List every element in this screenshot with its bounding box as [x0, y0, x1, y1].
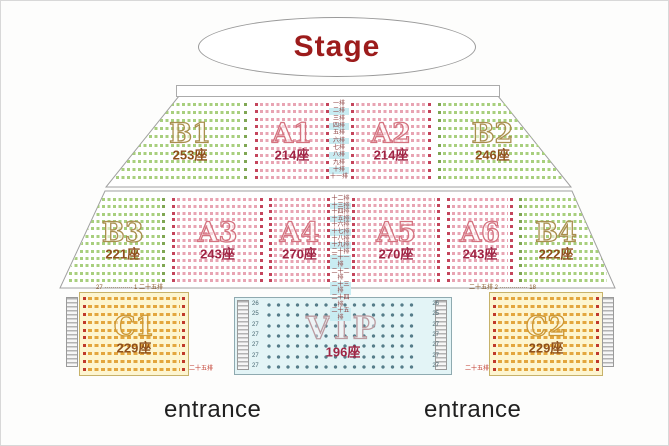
seat-row — [274, 273, 325, 276]
seat-row — [88, 336, 180, 339]
seat-row — [177, 259, 258, 262]
seat-row — [274, 248, 325, 251]
seat-row — [69, 257, 160, 260]
seat-row — [260, 176, 324, 179]
seat-row — [274, 210, 325, 213]
seat-row — [177, 239, 258, 242]
seat-row — [498, 360, 594, 363]
seat-row — [177, 225, 258, 228]
seat-row — [356, 139, 426, 142]
seat-row — [274, 217, 325, 220]
seat-row — [357, 254, 435, 257]
seat-row — [260, 139, 324, 142]
seat-row — [260, 147, 324, 150]
seat-row — [443, 160, 563, 163]
seat-row — [452, 205, 508, 208]
section-C2[interactable]: C2229座 — [489, 292, 603, 376]
stage: Stage — [198, 17, 476, 77]
seat-row — [357, 248, 435, 251]
row-label: 二十二排 — [330, 269, 351, 282]
row-labels-upper: 一排二排三排四排五排六排七排八排九排十排十一排 — [329, 101, 349, 181]
entrance-label-left: entrance — [164, 396, 261, 424]
seat-row — [524, 250, 607, 253]
vip-row-number: 26 — [252, 301, 262, 307]
seat-row — [357, 217, 435, 220]
seat-row — [116, 168, 242, 171]
seat-row — [274, 254, 325, 257]
seat-row — [274, 260, 325, 263]
stage-label: Stage — [294, 30, 381, 64]
seat-row — [356, 118, 426, 121]
vip-row-number: 27 — [429, 322, 439, 328]
seat-row — [116, 160, 242, 163]
seat-row — [267, 334, 419, 338]
seat-row — [116, 176, 242, 179]
seat-rows — [357, 198, 435, 282]
row-label: 五排 — [329, 130, 349, 137]
row-label: 九排 — [329, 160, 349, 167]
row-labels-middle: 十二排十三排十四排十五排十六排十七排十八排十九排二十排二十一排二十二排二十三排二… — [330, 196, 351, 284]
seat-row — [356, 132, 426, 135]
seat-row — [88, 297, 180, 300]
vip-row-number: 26 — [429, 301, 439, 307]
vip-row-number: 27 — [429, 342, 439, 348]
seat-row — [177, 198, 258, 201]
seat-row — [498, 321, 594, 324]
seat-row — [498, 352, 594, 355]
seat-row — [177, 266, 258, 269]
section-A5[interactable]: A5270座 — [351, 195, 441, 285]
seat-row — [524, 242, 607, 245]
seat-row — [524, 264, 607, 267]
seat-row — [274, 279, 325, 282]
seat-row — [357, 266, 435, 269]
seat-row — [177, 232, 258, 235]
row-label: 十七排 — [330, 229, 351, 236]
seat-row — [356, 125, 426, 128]
seat-row — [356, 147, 426, 150]
seat-row — [452, 218, 508, 221]
annotation-c1-row25-top: 27 ·············· 1 二十五排 — [96, 285, 163, 291]
seat-rows — [498, 297, 594, 371]
seat-row — [177, 212, 258, 215]
section-C1[interactable]: C1229座 — [79, 292, 189, 376]
seat-row — [356, 176, 426, 179]
row-label: 十四排 — [330, 209, 351, 216]
row-label: 六排 — [329, 138, 349, 145]
annotation-c2-row25-bottom: 二十五排 — [465, 366, 489, 372]
seat-row — [267, 344, 419, 348]
seat-row — [260, 103, 324, 106]
seat-row — [357, 198, 435, 201]
seat-row — [498, 305, 594, 308]
seat-rows — [274, 198, 325, 282]
seat-row — [498, 344, 594, 347]
vip-row-number: 27 — [252, 363, 262, 369]
row-label: 二排 — [329, 108, 349, 115]
seat-row — [452, 245, 508, 248]
row-label: 二十三排 — [330, 282, 351, 295]
seat-row — [267, 365, 419, 369]
section-A4[interactable]: A4270座 — [268, 195, 331, 285]
seat-row — [452, 212, 508, 215]
seat-row — [452, 225, 508, 228]
seat-row — [452, 239, 508, 242]
seat-row — [274, 235, 325, 238]
section-A2[interactable]: A2214座 — [350, 100, 432, 182]
seat-row — [357, 260, 435, 263]
seat-row — [69, 264, 160, 267]
seat-row — [274, 229, 325, 232]
seat-row — [357, 279, 435, 282]
entrance-label-right: entrance — [424, 396, 521, 424]
row-label: 二十一排 — [330, 255, 351, 268]
seat-row — [260, 110, 324, 113]
seat-row — [177, 205, 258, 208]
seat-row — [274, 204, 325, 207]
row-label: 十九排 — [330, 242, 351, 249]
seat-row — [356, 161, 426, 164]
seat-row — [88, 321, 180, 324]
seat-row — [260, 154, 324, 157]
seat-row — [177, 279, 258, 282]
seat-row — [356, 154, 426, 157]
seat-row — [357, 273, 435, 276]
vip-row-number: 25 — [429, 311, 439, 317]
seat-row — [357, 204, 435, 207]
seat-row — [452, 279, 508, 282]
seat-row — [274, 198, 325, 201]
annotation-c1-row25-bottom: 二十五排 — [189, 366, 213, 372]
seat-row — [88, 344, 180, 347]
seat-row — [498, 368, 594, 371]
vip-row-number: 27 — [252, 332, 262, 338]
seat-row — [498, 336, 594, 339]
vip-row-numbers-left: 26252727272727 — [252, 301, 262, 369]
seating-chart: Stage B1253座A1214座A2214座B2246座B3221座A324… — [0, 0, 669, 446]
stairs-hatch-c2 — [602, 297, 614, 367]
seat-row — [443, 176, 563, 179]
stairs-hatch-vip-left — [237, 300, 249, 370]
vip-row-number: 27 — [252, 322, 262, 328]
row-label: 八排 — [329, 152, 349, 159]
seat-row — [356, 103, 426, 106]
seat-rows — [177, 198, 258, 282]
vip-row-number: 27 — [252, 342, 262, 348]
seat-row — [88, 329, 180, 332]
seat-row — [260, 132, 324, 135]
seat-row — [498, 313, 594, 316]
section-A6[interactable]: A6243座 — [446, 195, 514, 285]
seat-row — [452, 232, 508, 235]
seat-rows — [452, 198, 508, 282]
row-label: 十二排 — [330, 196, 351, 203]
seat-row — [452, 259, 508, 262]
front-walkway — [176, 85, 500, 97]
seat-row — [69, 272, 160, 275]
seat-row — [356, 110, 426, 113]
vip-row-number: 25 — [252, 311, 262, 317]
seat-row — [260, 161, 324, 164]
seat-row — [88, 305, 180, 308]
seat-row — [274, 223, 325, 226]
seat-row — [88, 368, 180, 371]
row-label: 二十四排 — [330, 295, 351, 308]
seat-row — [88, 313, 180, 316]
seat-row — [274, 266, 325, 269]
section-A3[interactable]: A3243座 — [171, 195, 264, 285]
seat-row — [69, 250, 160, 253]
row-label: 十一排 — [329, 174, 349, 181]
seat-row — [116, 152, 242, 155]
seat-row — [260, 125, 324, 128]
annotation-c2-row25-top: 二十五排 2 ·············· 18 — [469, 285, 536, 291]
seat-row — [452, 266, 508, 269]
vip-row-number: 27 — [252, 353, 262, 359]
seat-row — [260, 118, 324, 121]
seat-rows — [260, 103, 324, 179]
vip-row-number: 27 — [429, 363, 439, 369]
seat-row — [498, 329, 594, 332]
seat-row — [443, 168, 563, 171]
seat-row — [69, 279, 160, 282]
row-label: 一排 — [329, 101, 349, 108]
row-label: 十六排 — [330, 222, 351, 229]
seat-row — [357, 210, 435, 213]
seat-row — [498, 297, 594, 300]
seat-row — [524, 257, 607, 260]
seat-row — [88, 352, 180, 355]
seat-row — [88, 360, 180, 363]
seat-row — [524, 279, 607, 282]
seat-row — [452, 198, 508, 201]
seat-rows — [88, 297, 180, 371]
seat-row — [267, 324, 419, 328]
vip-row-numbers-right: 26252727272727 — [429, 301, 439, 369]
stairs-hatch-c1 — [66, 297, 78, 367]
seat-row — [452, 252, 508, 255]
vip-row-number: 27 — [429, 332, 439, 338]
vip-row-number: 27 — [429, 353, 439, 359]
row-label: 十排 — [329, 167, 349, 174]
seat-row — [357, 242, 435, 245]
seat-row — [177, 218, 258, 221]
seat-row — [267, 355, 419, 359]
row-label: 七排 — [329, 145, 349, 152]
seat-row — [357, 223, 435, 226]
section-A1[interactable]: A1214座 — [254, 100, 330, 182]
seat-row — [177, 272, 258, 275]
seat-row — [357, 235, 435, 238]
row-label: 二十五排 — [330, 308, 351, 321]
row-label: 三排 — [329, 116, 349, 123]
seat-row — [524, 272, 607, 275]
seat-row — [356, 169, 426, 172]
seat-row — [260, 169, 324, 172]
seat-rows — [356, 103, 426, 179]
seat-row — [274, 242, 325, 245]
seat-row — [177, 252, 258, 255]
seat-row — [69, 242, 160, 245]
seat-row — [452, 272, 508, 275]
seat-row — [357, 229, 435, 232]
seat-row — [177, 245, 258, 248]
row-label: 四排 — [329, 123, 349, 130]
